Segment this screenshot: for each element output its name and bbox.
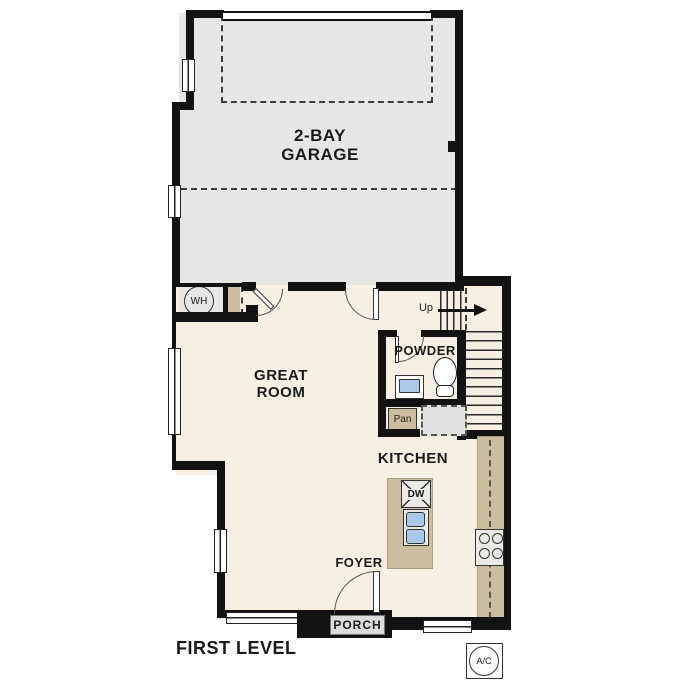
toilet-base-icon (436, 385, 454, 397)
page-title: FIRST LEVEL (176, 639, 302, 659)
foyer-label: FOYER (330, 556, 388, 570)
garage-door (223, 11, 431, 21)
pantry-bottom-wall (380, 429, 420, 437)
pantry-cabinet: Pan (388, 408, 417, 430)
bottom-left-window (226, 612, 298, 624)
garage-label: 2-BAY GARAGE (250, 127, 390, 164)
great-room-label: GREAT ROOM (238, 368, 324, 401)
garage-bottom-wall-mid (288, 282, 346, 291)
floor-plan: 2-BAY GARAGE WH Up P (0, 0, 687, 687)
garage-window-lower (168, 185, 181, 218)
dishwasher: DW (401, 480, 431, 508)
porch-label-tag: PORCH (330, 615, 385, 635)
garage-label-line1: 2-BAY (250, 127, 390, 146)
great-room-label-line1: GREAT (238, 368, 324, 385)
powder-left-wall (378, 330, 386, 437)
pantry-label: Pan (394, 414, 412, 425)
garage-bay-divider-dashed (181, 188, 457, 190)
stove-burner-icon (479, 533, 490, 544)
garage-wall-right (455, 10, 463, 290)
stairs-arrow-line (438, 309, 476, 312)
stove-burner-icon (492, 548, 503, 559)
ac-unit: A/C (466, 643, 503, 679)
ac-unit-label: A/C (476, 656, 491, 666)
great-room-window (168, 348, 181, 435)
garage-label-line2: GARAGE (250, 146, 390, 165)
kitchen-sink-basin-bottom (406, 529, 425, 544)
stove-burner-icon (492, 533, 503, 544)
garage-bottom-wall-thin (176, 283, 242, 287)
powder-top-wall-right (421, 330, 459, 337)
toilet-icon (433, 357, 457, 388)
water-heater-label: WH (191, 296, 208, 307)
stairs-lower-treads (465, 331, 503, 432)
closet-door-panel (228, 286, 240, 315)
dishwasher-label: DW (407, 489, 426, 500)
stairs-arrow-head-icon (474, 304, 487, 316)
lower-left-window (214, 529, 227, 573)
great-room-label-line2: ROOM (238, 385, 324, 402)
garage-apron-dashed (221, 15, 433, 103)
powder-sink-basin (399, 379, 420, 393)
stove-burner-icon (479, 548, 490, 559)
bottom-right-window (423, 620, 472, 633)
garage-wall-right-bump (448, 141, 456, 152)
kitchen-label: KITCHEN (368, 451, 458, 468)
refrigerator-space (421, 405, 467, 436)
garage-window-upper (182, 59, 195, 92)
porch-label: PORCH (333, 618, 381, 632)
powder-label: POWDER (388, 344, 462, 358)
kitchen-sink-basin-top (406, 512, 425, 527)
stairs-up-label: Up (414, 302, 438, 314)
ac-unit-icon: A/C (469, 646, 499, 676)
